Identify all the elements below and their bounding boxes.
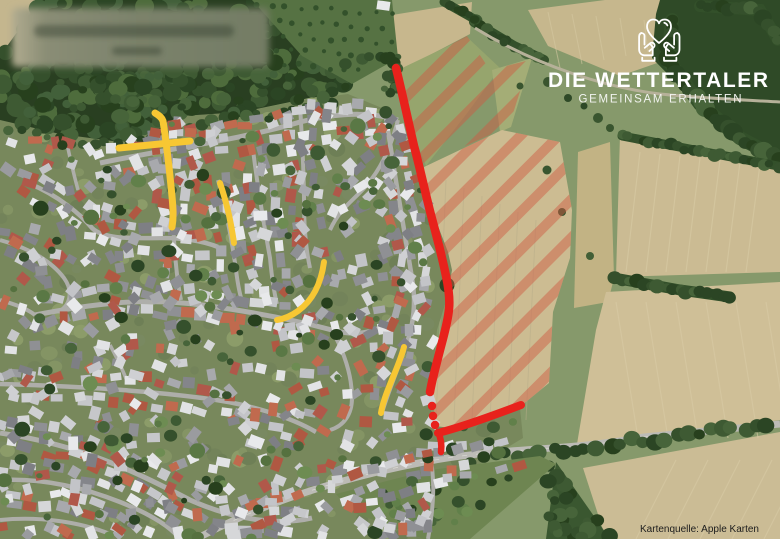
svg-text:GEMEINSAM ERHALTEN: GEMEINSAM ERHALTEN [579, 94, 742, 106]
svg-text:Kartenquelle: Apple Karten: Kartenquelle: Apple Karten [640, 524, 759, 535]
svg-text:DIE WETTERTALER: DIE WETTERTALER [548, 69, 768, 92]
